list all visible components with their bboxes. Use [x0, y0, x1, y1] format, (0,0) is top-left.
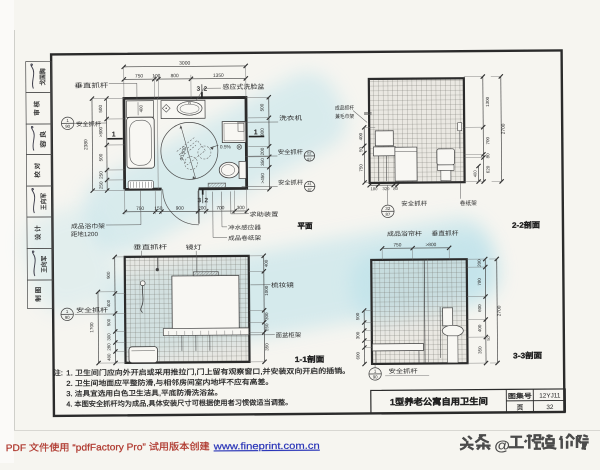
- svg-text:@: @: [494, 438, 510, 454]
